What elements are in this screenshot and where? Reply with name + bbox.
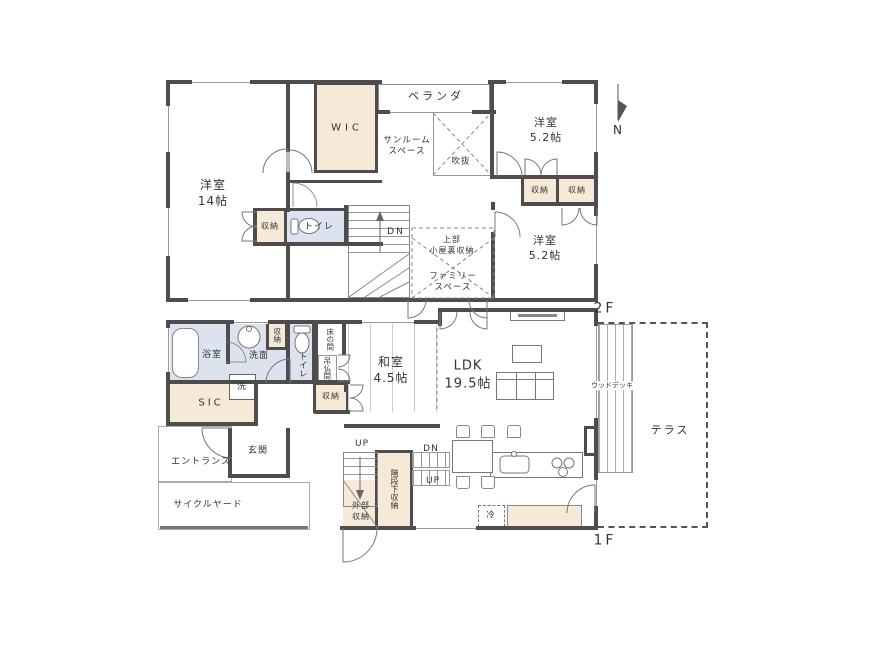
north-label: N [613, 122, 623, 138]
stairs-down-label-2f: DN [387, 226, 405, 238]
stair-detail [343, 254, 409, 528]
room-label-attic-storage: 上部 小屋裏収納 [430, 235, 475, 257]
room-label-tokonoma: 床の間 [326, 328, 334, 351]
room-label-closet-b: 収納 [568, 186, 586, 197]
room-label-washitsu: 和室 4.5帖 [373, 354, 408, 386]
room-label-wood-deck: ウッドデッキ [590, 381, 634, 390]
room-label-yoshitsu14: 洋室 14帖 [198, 177, 228, 209]
room-label-sunroom: サンルーム スペース [383, 136, 430, 159]
room-label-ldk: LDK 19.5帖 [445, 357, 492, 392]
room-label-terrace: テラス [651, 424, 690, 439]
room-label-wic: WIC [331, 121, 363, 135]
room-label-under-stair: 階段下収納 [390, 469, 398, 509]
stairs-up-label-a: UP [355, 438, 369, 450]
toilet-1f-tank [294, 326, 310, 333]
room-label-toilet-2f: トイレ [304, 221, 334, 233]
room-label-washroom: 洗面 [249, 350, 269, 362]
room-label-laundry: 洗 [237, 381, 247, 393]
washbasin-faucet [247, 327, 252, 332]
room-label-void: 吹抜 [451, 156, 470, 167]
room-label-yoshitsu52-bottom: 洋室 5.2帖 [529, 234, 562, 264]
room-label-washitsu-closet: 収納 [322, 392, 340, 403]
floor-1-label: 1F [594, 532, 617, 551]
room-label-cycle-yard: サイクルヤード [173, 499, 243, 511]
kitchen-sink [500, 456, 529, 473]
stairs-up-label-b: UP [426, 475, 440, 487]
stairs-down-label-1f: DN [423, 443, 439, 455]
room-label-external-storage: 外部 収納 [352, 501, 370, 523]
room-label-yoshitsu52-top: 洋室 5.2帖 [530, 116, 563, 146]
room-label-butsuma: 吊仏間 [323, 357, 331, 380]
stove-burner [564, 458, 574, 468]
room-label-fridge: 冷 [486, 510, 496, 521]
stove-burner [552, 458, 562, 468]
floorplan-canvas: 洋室 14帖 WIC ベランダ サンルーム スペース 吹抜 洋室 5.2帖 収納… [0, 0, 869, 652]
toilet-2f-tank [291, 219, 298, 234]
room-label-entrance: エントランス [171, 456, 231, 468]
kitchen-faucet [512, 452, 517, 457]
floor-2-label: 2F [594, 300, 617, 319]
room-label-toilet-1f: トイレ [298, 352, 307, 378]
toilet-1f-bowl [295, 333, 309, 353]
room-label-genkan: 玄関 [248, 445, 268, 457]
room-label-wash-closet: 収納 [273, 328, 281, 343]
fixtures [238, 219, 574, 477]
room-label-bath: 浴室 [202, 349, 222, 361]
room-label-sic: SIC [198, 396, 223, 410]
room-label-closet-a: 収納 [531, 186, 549, 197]
room-label-veranda: ベランダ [408, 90, 464, 105]
room-label-family-space: ファミリー スペース [429, 272, 477, 295]
stove-burner [559, 468, 568, 477]
north-arrow-icon [618, 84, 627, 122]
room-label-hall-closet: 収納 [261, 222, 279, 233]
